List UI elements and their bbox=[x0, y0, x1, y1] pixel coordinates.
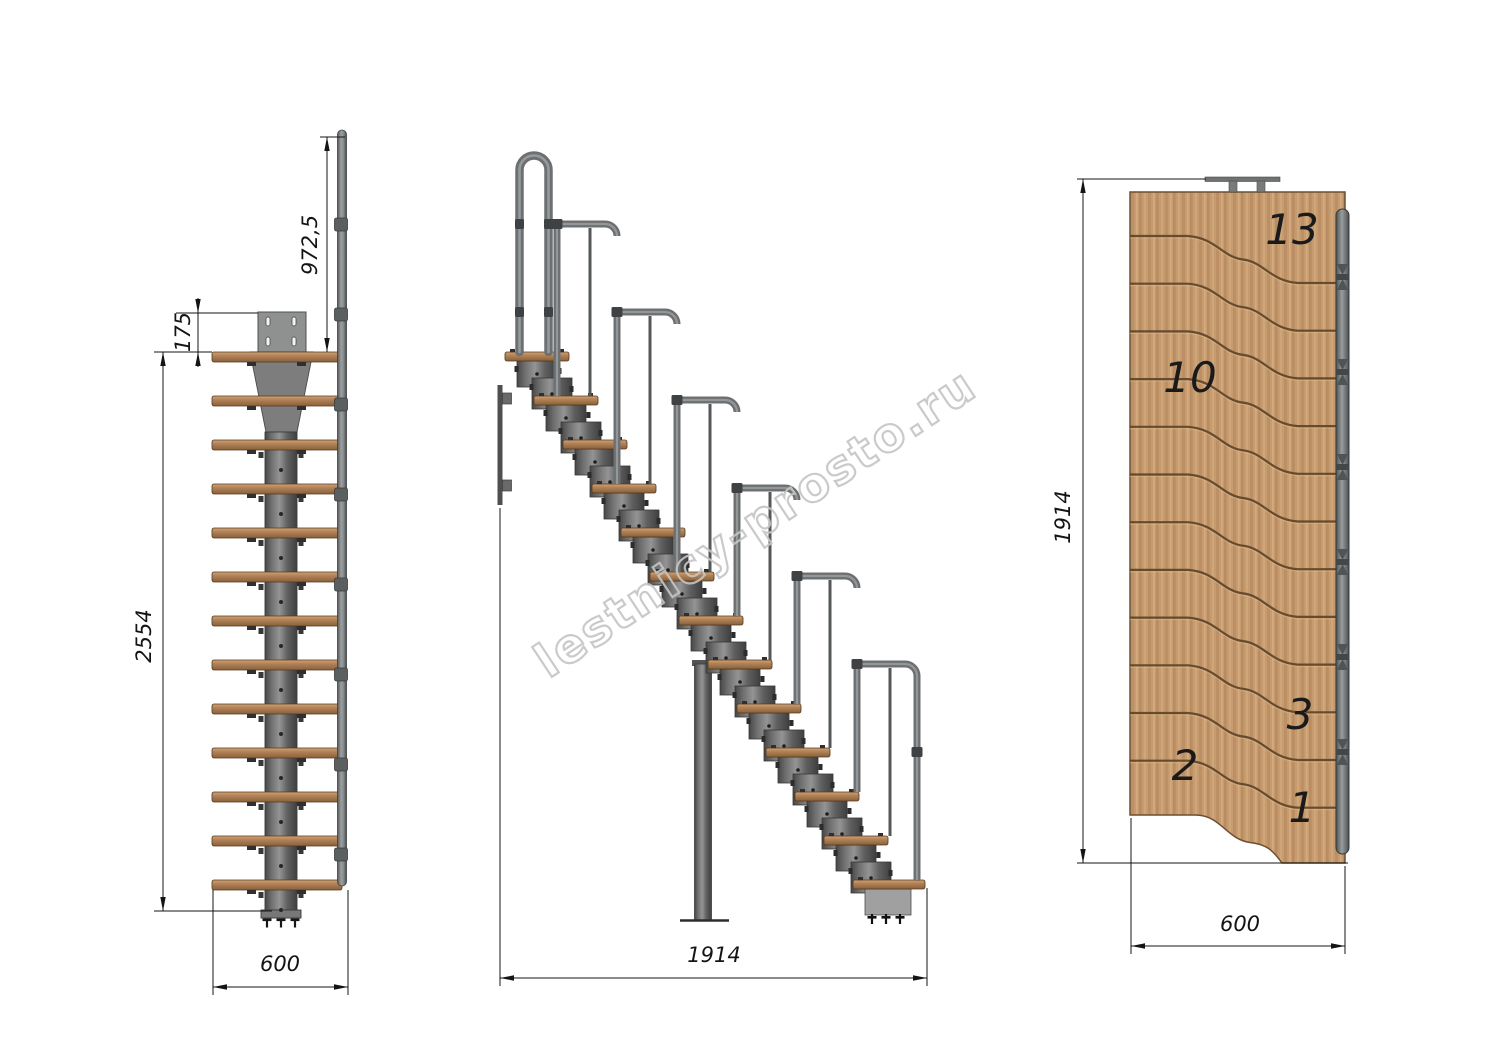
arrowhead bbox=[195, 352, 200, 366]
module-nub bbox=[645, 500, 649, 506]
post-joint bbox=[335, 848, 348, 861]
post-joint bbox=[335, 758, 348, 771]
dim-label-1914-plan: 1914 bbox=[1051, 490, 1075, 543]
module-bolt bbox=[535, 372, 539, 376]
tread-clamp bbox=[297, 846, 306, 850]
tread-clamp bbox=[247, 802, 256, 806]
column-nub bbox=[259, 848, 264, 854]
arrowhead bbox=[324, 137, 329, 151]
base-module bbox=[865, 889, 911, 915]
handrail-segment-highlight bbox=[557, 224, 617, 396]
side-tread bbox=[853, 880, 925, 889]
tread-clamp bbox=[247, 406, 256, 410]
side-tread bbox=[766, 748, 830, 757]
front-tread bbox=[212, 792, 342, 802]
tread-clamp bbox=[297, 758, 306, 762]
column-nub bbox=[259, 804, 264, 810]
tread-clamp bbox=[297, 362, 306, 366]
tread-bolt bbox=[878, 833, 883, 836]
front-tread bbox=[212, 484, 342, 494]
column-nub bbox=[259, 496, 264, 502]
front-tread bbox=[212, 704, 342, 714]
module-nub bbox=[704, 648, 708, 654]
anchor-bolt bbox=[885, 914, 887, 924]
arrowhead bbox=[195, 299, 200, 313]
module-nub bbox=[570, 386, 574, 392]
mount-plate bbox=[258, 312, 306, 352]
plate-slot bbox=[292, 317, 296, 326]
rail-joint-band bbox=[1336, 559, 1349, 565]
module-nub bbox=[831, 782, 835, 788]
module-nub bbox=[819, 764, 823, 770]
step-label-3: 3 bbox=[1287, 690, 1314, 739]
column-bolt bbox=[279, 688, 283, 692]
module-bolt bbox=[825, 812, 829, 816]
arrowhead bbox=[1080, 179, 1085, 193]
handrail-segment bbox=[857, 664, 917, 792]
bracket-tab bbox=[1229, 181, 1237, 192]
tread-clamp bbox=[247, 714, 256, 718]
side-wall-bracket bbox=[498, 385, 512, 505]
rail-clamp bbox=[552, 219, 563, 229]
tread-clamp bbox=[247, 538, 256, 542]
post-joint bbox=[335, 308, 348, 321]
module-nub bbox=[762, 736, 766, 742]
front-tread bbox=[212, 880, 342, 890]
side-tread bbox=[708, 660, 772, 669]
rail-joint-band bbox=[1336, 369, 1349, 375]
arrowhead bbox=[160, 352, 165, 366]
front-tread bbox=[212, 616, 342, 626]
module-nub bbox=[573, 454, 577, 460]
module-bolt bbox=[840, 832, 844, 836]
rail-clamp bbox=[792, 571, 803, 581]
anchor-bolt bbox=[871, 914, 873, 924]
drawing-svg: 972,5 175 2554 600 bbox=[0, 0, 1500, 1061]
module-bolt bbox=[709, 636, 713, 640]
handrail-segment bbox=[617, 312, 677, 484]
column-bolt bbox=[279, 512, 283, 516]
module-nub bbox=[744, 650, 748, 656]
tread-clamp bbox=[297, 626, 306, 630]
arrowhead bbox=[1331, 943, 1345, 948]
module-nub bbox=[834, 850, 838, 856]
plate-slot bbox=[266, 317, 270, 326]
module-nub bbox=[657, 518, 661, 524]
handrail-segment-highlight bbox=[797, 576, 857, 704]
handrail-loop-tube bbox=[520, 156, 549, 353]
module-bolt bbox=[753, 700, 757, 704]
module-nub bbox=[515, 366, 519, 372]
anchor-bolt bbox=[266, 919, 268, 928]
tread-clamp bbox=[247, 670, 256, 674]
module-nub bbox=[849, 868, 853, 874]
tread-clamp bbox=[297, 890, 306, 894]
rail-clamp bbox=[912, 747, 923, 757]
column-anchors bbox=[263, 919, 300, 928]
tread-clamp bbox=[297, 406, 306, 410]
watermark: lestnicy-prosto.ru bbox=[525, 358, 987, 689]
module-nub bbox=[761, 676, 765, 682]
tread-clamp bbox=[297, 670, 306, 674]
tread-bolt bbox=[626, 525, 631, 528]
rail-joint-band bbox=[1336, 274, 1349, 280]
tread-bolt bbox=[762, 657, 767, 660]
side-tread bbox=[824, 836, 888, 845]
tread-clamp bbox=[247, 450, 256, 454]
tread-clamp bbox=[247, 362, 256, 366]
side-tread bbox=[795, 792, 859, 801]
tread-clamp bbox=[247, 582, 256, 586]
handrail-segment bbox=[557, 224, 617, 396]
module-nub bbox=[733, 692, 737, 698]
post-joint bbox=[335, 398, 348, 411]
loop-joint bbox=[544, 307, 553, 317]
module-bolt bbox=[811, 788, 815, 792]
anchor-bolt bbox=[294, 919, 296, 928]
bracket-tab bbox=[503, 480, 512, 491]
rail-clamp bbox=[612, 307, 623, 317]
front-handrail-post bbox=[335, 130, 348, 886]
arrowhead bbox=[160, 897, 165, 911]
dim-label-1914-side: 1914 bbox=[687, 943, 740, 967]
tread-clamp bbox=[297, 582, 306, 586]
tread-clamp bbox=[297, 538, 306, 542]
module-bolt bbox=[579, 436, 583, 440]
side-tread bbox=[592, 484, 656, 493]
module-nub bbox=[587, 412, 591, 418]
tread-clamp bbox=[247, 890, 256, 894]
module-bolt bbox=[767, 724, 771, 728]
module-bolt bbox=[637, 524, 641, 528]
handrail-segment-highlight bbox=[617, 312, 677, 484]
module-nub bbox=[544, 410, 548, 416]
dim-label-600-front: 600 bbox=[260, 952, 300, 976]
front-tread bbox=[212, 836, 342, 846]
handrail-loop-highlight bbox=[520, 156, 549, 353]
module-bolt bbox=[550, 392, 554, 396]
anchor-bolt bbox=[899, 914, 901, 924]
arrowhead bbox=[913, 975, 927, 980]
plan-handrail bbox=[1336, 209, 1349, 854]
dim-label-2554: 2554 bbox=[132, 609, 156, 662]
module-bolt bbox=[796, 768, 800, 772]
module-nub bbox=[530, 384, 534, 390]
handrail-segment-highlight bbox=[857, 664, 917, 792]
dim-front-total-height: 2554 bbox=[132, 352, 272, 911]
column-nub bbox=[259, 716, 264, 722]
module-bolt bbox=[869, 876, 873, 880]
front-tread bbox=[212, 396, 342, 406]
column-bolt bbox=[279, 732, 283, 736]
front-mount-plate bbox=[258, 312, 306, 352]
step-label-2: 2 bbox=[1172, 741, 1199, 790]
column-bolt bbox=[279, 820, 283, 824]
post-joint bbox=[335, 488, 348, 501]
tread-clamp bbox=[297, 714, 306, 718]
column-bolt bbox=[279, 600, 283, 604]
column-nub bbox=[259, 540, 264, 546]
arrowhead bbox=[1080, 849, 1085, 863]
module-bolt bbox=[622, 504, 626, 508]
module-bolt bbox=[695, 612, 699, 616]
column-bolt bbox=[279, 776, 283, 780]
step-label-1: 1 bbox=[1289, 783, 1316, 832]
module-bolt bbox=[738, 680, 742, 684]
handrail-segment bbox=[797, 576, 857, 704]
rail-joint-band bbox=[1336, 464, 1349, 470]
module-nub bbox=[718, 674, 722, 680]
tread-clamp bbox=[247, 494, 256, 498]
tread-bolt bbox=[800, 789, 805, 792]
front-tread bbox=[212, 748, 342, 758]
module-nub bbox=[599, 430, 603, 436]
leg-tube bbox=[695, 664, 712, 920]
arrowhead bbox=[324, 338, 329, 352]
front-tread bbox=[212, 528, 342, 538]
tread-bolt bbox=[713, 657, 718, 660]
column-bolt bbox=[279, 864, 283, 868]
column-bolt bbox=[279, 908, 283, 912]
tread-bolt bbox=[510, 349, 515, 352]
module-nub bbox=[559, 428, 563, 434]
front-view: 972,5 175 2554 600 bbox=[132, 130, 348, 995]
module-nub bbox=[602, 498, 606, 504]
column-bolt bbox=[279, 468, 283, 472]
side-tread bbox=[679, 616, 743, 625]
front-tread bbox=[212, 440, 342, 450]
module-nub bbox=[802, 738, 806, 744]
module-nub bbox=[631, 542, 635, 548]
column-nub bbox=[259, 452, 264, 458]
rail-clamp bbox=[672, 395, 683, 405]
step-label-13: 13 bbox=[1265, 205, 1318, 254]
anchor-bolt bbox=[280, 919, 282, 928]
rail-clamp bbox=[732, 483, 743, 493]
bracket-tab bbox=[503, 393, 512, 404]
arrowhead bbox=[500, 975, 514, 980]
column-nub bbox=[259, 628, 264, 634]
tread-clamp bbox=[247, 626, 256, 630]
tread-bolt bbox=[568, 437, 573, 440]
side-support-leg bbox=[680, 660, 729, 921]
plan-view: 13 10 3 2 1 1914 bbox=[1051, 177, 1349, 954]
module-nub bbox=[776, 762, 780, 768]
module-nub bbox=[628, 474, 632, 480]
rail-joint-band bbox=[1336, 654, 1349, 660]
module-nub bbox=[732, 632, 736, 638]
module-bolt bbox=[608, 480, 612, 484]
module-nub bbox=[805, 806, 809, 812]
module-nub bbox=[791, 780, 795, 786]
dim-label-175: 175 bbox=[171, 312, 195, 352]
module-nub bbox=[588, 472, 592, 478]
post-joint bbox=[335, 668, 348, 681]
column-bolt bbox=[279, 556, 283, 560]
column-nub bbox=[259, 760, 264, 766]
column-bolt bbox=[279, 644, 283, 648]
module-bolt bbox=[593, 460, 597, 464]
tread-clamp bbox=[297, 494, 306, 498]
plate-slot bbox=[292, 337, 296, 346]
front-tread bbox=[212, 572, 342, 582]
dim-label-600-plan: 600 bbox=[1220, 912, 1260, 936]
bracket-tab bbox=[1257, 181, 1265, 192]
module-bolt bbox=[782, 744, 786, 748]
module-bolt bbox=[854, 856, 858, 860]
post-joint bbox=[335, 578, 348, 591]
tread-bolt bbox=[829, 833, 834, 836]
module-nub bbox=[848, 808, 852, 814]
module-nub bbox=[715, 606, 719, 612]
side-tread bbox=[737, 704, 801, 713]
module-nub bbox=[889, 870, 893, 876]
step-label-10: 10 bbox=[1163, 353, 1216, 402]
tread-bolt bbox=[858, 877, 863, 880]
tread-bolt bbox=[742, 701, 747, 704]
tread-clamp bbox=[247, 846, 256, 850]
module-nub bbox=[747, 718, 751, 724]
tread-bolt bbox=[771, 745, 776, 748]
side-handrail-loop bbox=[515, 156, 553, 353]
dim-label-972-5: 972,5 bbox=[298, 215, 322, 275]
rail-clamp bbox=[852, 659, 863, 669]
tread-clamp bbox=[247, 758, 256, 762]
bracket-bar bbox=[1205, 177, 1280, 182]
tread-bolt bbox=[684, 613, 689, 616]
module-nub bbox=[820, 824, 824, 830]
wall-plate-edge bbox=[498, 385, 503, 505]
plate-slot bbox=[266, 337, 270, 346]
arrowhead bbox=[334, 984, 348, 989]
module-nub bbox=[790, 720, 794, 726]
tread-clamp bbox=[297, 802, 306, 806]
column-nub bbox=[259, 672, 264, 678]
tread-bolt bbox=[849, 789, 854, 792]
post-joint bbox=[335, 218, 348, 231]
arrowhead bbox=[1131, 943, 1145, 948]
column-nub bbox=[259, 892, 264, 898]
tread-bolt bbox=[820, 745, 825, 748]
handrail-post bbox=[338, 130, 347, 886]
module-bolt bbox=[651, 548, 655, 552]
rail-joint-band bbox=[1336, 749, 1349, 755]
module-nub bbox=[877, 852, 881, 858]
module-nub bbox=[689, 630, 693, 636]
module-bolt bbox=[564, 416, 568, 420]
tread-clamp bbox=[297, 450, 306, 454]
tread-bolt bbox=[597, 481, 602, 484]
arrowhead bbox=[213, 984, 227, 989]
module-nub bbox=[617, 516, 621, 522]
loop-joint bbox=[515, 219, 524, 229]
module-bolt bbox=[724, 656, 728, 660]
plan-mount-bracket bbox=[1205, 177, 1280, 192]
front-tread bbox=[212, 660, 342, 670]
column-nub bbox=[259, 584, 264, 590]
module-nub bbox=[773, 694, 777, 700]
tread-bolt bbox=[539, 393, 544, 396]
front-tread bbox=[212, 352, 342, 362]
staircase-technical-drawing: 972,5 175 2554 600 bbox=[0, 0, 1500, 1061]
side-tread bbox=[534, 396, 598, 405]
module-nub bbox=[860, 826, 864, 832]
loop-joint bbox=[515, 307, 524, 317]
